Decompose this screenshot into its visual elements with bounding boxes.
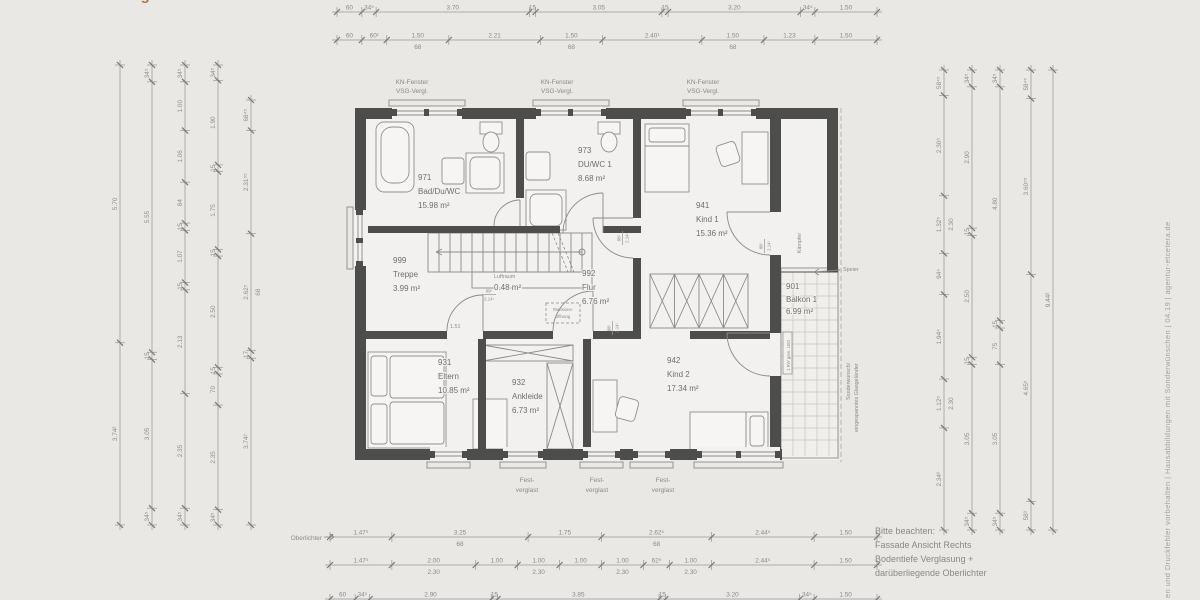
dim-label: 1.47⁵ (353, 530, 368, 537)
dim-label: 34⁵ (177, 68, 184, 78)
dim-label: 3.05 (964, 432, 971, 445)
dim-label: 15 (144, 352, 151, 360)
dimension-chain: 6060¹1.50682.211.50682.40¹1.50681.231.50 (332, 33, 882, 52)
dimension-chain: 34⁵1.001.0684151.07152.132.3534⁵ (177, 60, 190, 530)
dim-label: 17 (243, 350, 250, 358)
note-line: Bodentiefe Verglasung + (875, 552, 987, 566)
dim-label: 1.00 (684, 558, 697, 565)
dim-label: 15 (529, 5, 537, 12)
room-area: 8.68 m² (578, 174, 605, 183)
dim-label: 15 (210, 164, 217, 172)
dimension-chain: 34⁵4.8015753.0534⁵ (992, 65, 1005, 535)
note-block: Bitte beachten: Fassade Ansicht Rechts B… (875, 524, 987, 580)
room-area: 10.85 m² (438, 386, 470, 395)
dim-label: 84 (177, 199, 184, 207)
dim-label: 3.05 (992, 432, 999, 445)
room-name: Eltern (438, 372, 459, 381)
room-number: 999 (393, 256, 407, 265)
dimension-chain: 6034⁵2.90153.85153.2034⁵1.50 (325, 592, 882, 600)
room-number: 992 (582, 269, 596, 278)
room-name: Bad/Du/WC (418, 187, 460, 196)
dim-label: 3.25 (454, 530, 467, 537)
dim-label: 2.35 (177, 444, 184, 457)
desk-kind1 (742, 132, 768, 184)
dim-label: 1.00 (616, 558, 629, 565)
dim-sub-label: 2.30 (428, 569, 441, 576)
dim-sub-label: 68 (414, 44, 422, 51)
room-area: 17.34 m² (667, 384, 699, 393)
room-area: 6.76 m² (582, 297, 609, 306)
kaempfer-label: Kämpfer (797, 233, 803, 254)
window-bottom-4 (630, 447, 673, 468)
dim-label: 2.14¹ (767, 241, 772, 251)
room-number: 932 (512, 378, 526, 387)
dim-label: 2.44⁵ (755, 558, 770, 565)
dim-label: 88⁵ (759, 243, 764, 250)
floorplan-sheet: Dachgeschoss (0, 0, 1200, 600)
room-number: 901 (786, 282, 800, 291)
sonderwunsch-label: eingespanntes Glasgeländer (854, 363, 860, 432)
oberlichter-label: Oberlichter (291, 535, 323, 542)
dim-sub-label: 2.30 (684, 569, 697, 576)
dim-label: 2.44⁵ (755, 530, 770, 537)
pillow-kind1 (649, 128, 685, 142)
note-line: darüberliegende Oberlichter (875, 566, 987, 580)
dim-sub-label: 2.30 (948, 397, 955, 410)
room-number: 942 (667, 356, 681, 365)
dim-label: 1.00 (574, 558, 587, 565)
sonderwunsch-label: Sonderwunsch/ (846, 362, 852, 400)
room-number: 931 (438, 358, 452, 367)
dimension-chain: 68⁴⁵2.31⁵⁵2.62⁵68173.74² (243, 95, 262, 530)
dimension-chain: 34⁵5.55153.0534⁵ (144, 60, 157, 530)
dim-label: 15 (964, 228, 971, 236)
dim-label: 1.00 (177, 100, 184, 113)
dim-label: 2.50 (964, 290, 971, 303)
dim-label: 70 (210, 386, 217, 394)
dim-label: 3.20 (726, 592, 739, 599)
dim-label: 62⁵ (652, 558, 662, 565)
fixed-glazing-label: verglast (586, 487, 609, 494)
dim-label: 88⁵ (617, 235, 622, 242)
dim-label: 2.62⁵ (649, 530, 664, 537)
dim-label: 3.74² (112, 427, 119, 442)
dim-sub-label: 68 (456, 541, 464, 548)
bathtub-inner (381, 127, 409, 183)
clear-width-label: 1.51 (450, 324, 461, 330)
dim-label: 34⁵ (144, 511, 151, 521)
dimension-chain: 58⁴⁵3.60⁵⁵4.65⁵58³ (1023, 65, 1036, 535)
dim-label: 2.14¹ (484, 297, 494, 302)
dim-label: 2.90 (424, 592, 437, 599)
dim-sub-label: 68 (568, 44, 576, 51)
dim-label: 94⁴ (936, 269, 943, 279)
dim-sub-label: 68 (255, 288, 262, 296)
dim-label: 15 (491, 592, 499, 599)
dim-label: 1.50 (412, 33, 425, 40)
window-type-label: VSG-Vergl. (396, 88, 428, 95)
room-area: 15.98 m² (418, 201, 450, 210)
desk-kind2 (593, 380, 617, 432)
window-type-label: VSG-Vergl. (541, 88, 573, 95)
dim-label: 3.74² (243, 434, 250, 449)
room-number: 973 (578, 146, 592, 155)
room-area: 6.73 m² (512, 406, 539, 415)
dim-label: 1.50 (839, 592, 852, 599)
dim-label: 58⁴⁵ (936, 76, 943, 89)
shower-bad-inner (470, 157, 500, 189)
speier-label: Speier (843, 267, 859, 273)
dim-label: 15 (661, 5, 669, 12)
dim-label: 2.62⁵ (243, 284, 250, 299)
dim-label: 34⁵ (802, 592, 812, 599)
shower-duwc-inner (530, 194, 562, 226)
room-name: Ankleide (512, 392, 543, 401)
dim-label: 1.50 (727, 33, 740, 40)
dim-sub-label: 2.30 (948, 218, 955, 231)
room-name: Luftraum (494, 274, 516, 280)
dim-label: 2.14¹ (625, 233, 630, 243)
dim-label: 34⁵ (177, 511, 184, 521)
window-type-label: VSG-Vergl. (687, 88, 719, 95)
dim-label: 34⁵ (992, 516, 999, 526)
dim-label: 1.50 (839, 558, 852, 565)
dim-label: 2.40¹ (645, 33, 660, 40)
dim-label: 15 (992, 320, 999, 328)
dim-label: 1.50 (839, 530, 852, 537)
cut-off-title: Dachgeschoss (76, 0, 376, 5)
dim-label: 2.21 (488, 33, 501, 40)
washbasin-bad (442, 158, 464, 184)
mattress-eltern-2 (390, 402, 444, 444)
note-line: Fassade Ansicht Rechts (875, 538, 987, 552)
room-name: Kind 1 (696, 215, 719, 224)
toilet-icon (483, 132, 499, 152)
dim-label: 4.80 (992, 197, 999, 210)
dim-label: 3.85 (572, 592, 585, 599)
window-bottom-3 (580, 447, 623, 468)
washbasin-duwc (526, 152, 550, 180)
window-type-label: KN-Fenster (687, 79, 721, 86)
window-left (347, 207, 368, 269)
dim-label: 1.90 (210, 116, 217, 129)
dim-label: 68⁴⁵ (243, 109, 250, 122)
window-bottom-1 (427, 447, 470, 468)
dim-label: 58⁴⁵ (1023, 78, 1030, 91)
dim-label: 3.20 (728, 5, 741, 12)
window-bottom-2 (500, 447, 546, 468)
dim-label: 75 (992, 342, 999, 350)
room-area: 0.48 m² (494, 283, 521, 292)
dim-label: 2.90 (964, 151, 971, 164)
title-fragment-text: Dachgeschoss (76, 0, 376, 4)
dim-label: 9.44² (1045, 293, 1052, 308)
dim-label: 34⁵ (210, 512, 217, 522)
dim-label: 89⁵ (486, 289, 493, 294)
dim-label: 60¹ (370, 33, 379, 40)
floorplan-drawing: 971 Bad/Du/WC 15.98 m² 973 DU/WC 1 8.68 … (0, 0, 1200, 600)
dim-label: 1.75 (559, 530, 572, 537)
window-bottom-5 (694, 447, 783, 468)
room-area: 3.99 m² (393, 284, 420, 293)
fixed-glazing-label: verglast (652, 487, 675, 494)
fixed-glazing-label: verglast (516, 487, 539, 494)
room-name: Balkon 1 (786, 295, 818, 304)
dim-label: 3.70 (447, 5, 460, 12)
dim-label: 15 (659, 592, 667, 599)
dim-label: 15 (177, 223, 184, 231)
dim-label: 2.30⁶ (936, 138, 943, 153)
note-title: Bitte beachten: (875, 524, 987, 538)
dimension-chain: 1.47⁵3.25681.752.62⁵682.44⁵1.50 (325, 530, 882, 549)
dim-label: 34⁵ (364, 5, 374, 12)
dim-label: 15 (210, 367, 217, 375)
mattress-eltern-1 (390, 356, 444, 398)
dim-label: 34⁵ (358, 592, 368, 599)
dim-label: 88⁵ (607, 325, 612, 332)
room-area: 15.36 m² (696, 229, 728, 238)
dim-label: 1.07 (177, 250, 184, 263)
dim-label: 1.75 (210, 204, 217, 217)
dim-label: 1.00 (532, 558, 545, 565)
dim-label: 34⁵ (210, 67, 217, 77)
room-number: 941 (696, 201, 710, 210)
dim-label: 3.05 (592, 5, 605, 12)
escape-window-label: 1.RW gem. LBO (786, 339, 791, 371)
toilet-icon-2 (601, 132, 617, 152)
dim-label: 15 (964, 357, 971, 365)
dim-label: 2.31⁵⁵ (243, 173, 250, 191)
dim-label: 5.55 (144, 210, 151, 223)
dimension-chain: 34⁵2.90152.50153.0534⁵ (964, 65, 977, 535)
dim-label: 60 (346, 5, 354, 12)
fixed-glazing-label: Fest- (590, 477, 605, 484)
revision-opening-label: öffnung (556, 314, 571, 319)
dim-label: 1.32⁵ (936, 217, 943, 232)
room-area: 6.99 m² (786, 307, 813, 316)
dimension-chain: 58⁴⁵2.30⁶1.32⁵2.3094⁴1.94⁴1.12⁵2.302.34⁶ (936, 65, 955, 535)
dim-label: 60 (339, 592, 347, 599)
dim-label: 1.94⁴ (936, 329, 943, 344)
fixed-glazing-label: Fest- (656, 477, 671, 484)
dim-label: 34⁵ (803, 5, 813, 12)
dim-label: 1.47⁵ (353, 558, 368, 565)
dim-label: 1.00 (490, 558, 503, 565)
dim-sub-label: 2.30 (616, 569, 629, 576)
revision-opening-label: Revisions- (553, 307, 574, 312)
dim-label: 1.12⁵ (936, 396, 943, 411)
pillow-eltern-1 (371, 356, 387, 396)
dim-label: 1.06 (177, 150, 184, 163)
room-name: Treppe (393, 270, 419, 279)
dim-sub-label: 2.30 (532, 569, 545, 576)
pillow-kind2 (750, 416, 764, 446)
dim-label: 2.50 (210, 305, 217, 318)
dim-label: 2.35 (210, 451, 217, 464)
dim-label: 1.23 (783, 33, 796, 40)
window-top-1 (389, 100, 465, 121)
dim-label: 34⁵ (144, 68, 151, 78)
dim-label: 1.50 (840, 5, 853, 12)
fixed-glazing-label: Fest- (520, 477, 535, 484)
dimension-chain: 9.44² (1045, 65, 1058, 535)
dimension-chain: 1.47⁵2.002.301.001.002.301.001.002.3062⁵… (325, 558, 882, 577)
dimension-chain: 6034⁵3.70153.05153.2034⁵1.50 (332, 5, 882, 18)
dim-label: 34⁵ (964, 73, 971, 83)
dim-label: 15 (210, 249, 217, 257)
dim-label: 4.65⁵ (1023, 380, 1030, 395)
window-type-label: KN-Fenster (396, 79, 430, 86)
dim-sub-label: 68 (729, 44, 737, 51)
room-name: Flur (582, 283, 596, 292)
dim-label: 3.05 (144, 427, 151, 440)
room-number: 971 (418, 173, 432, 182)
dim-sub-label: 68 (653, 541, 661, 548)
window-top-2 (533, 100, 609, 121)
dim-label: 1.50 (840, 33, 853, 40)
room-name: Kind 2 (667, 370, 690, 379)
dim-label: 2.13 (177, 335, 184, 348)
pillow-eltern-2 (371, 404, 387, 444)
dim-label: 58³ (1023, 511, 1030, 520)
dimension-chain: 5.703.74² (112, 60, 125, 530)
dim-label: 60 (346, 33, 354, 40)
dimension-chain: 34⁵1.90151.75152.5015702.3534⁵ (210, 60, 223, 530)
dim-label: 2.00 (428, 558, 441, 565)
dim-label: 3.60⁵⁵ (1023, 177, 1030, 195)
sheet-footer-vertical: en und Druckfehler vorbehalten | Hausabb… (1163, 221, 1172, 598)
window-top-3 (683, 100, 759, 121)
dim-label: 34⁵ (992, 73, 999, 83)
dim-label: 2.34⁶ (936, 471, 943, 486)
dim-label: 5.70 (112, 197, 119, 210)
dim-label: 1.50 (565, 33, 578, 40)
dim-label: 2.14¹ (615, 323, 620, 333)
room-name: DU/WC 1 (578, 160, 612, 169)
window-type-label: KN-Fenster (541, 79, 575, 86)
dim-label: 15 (177, 282, 184, 290)
